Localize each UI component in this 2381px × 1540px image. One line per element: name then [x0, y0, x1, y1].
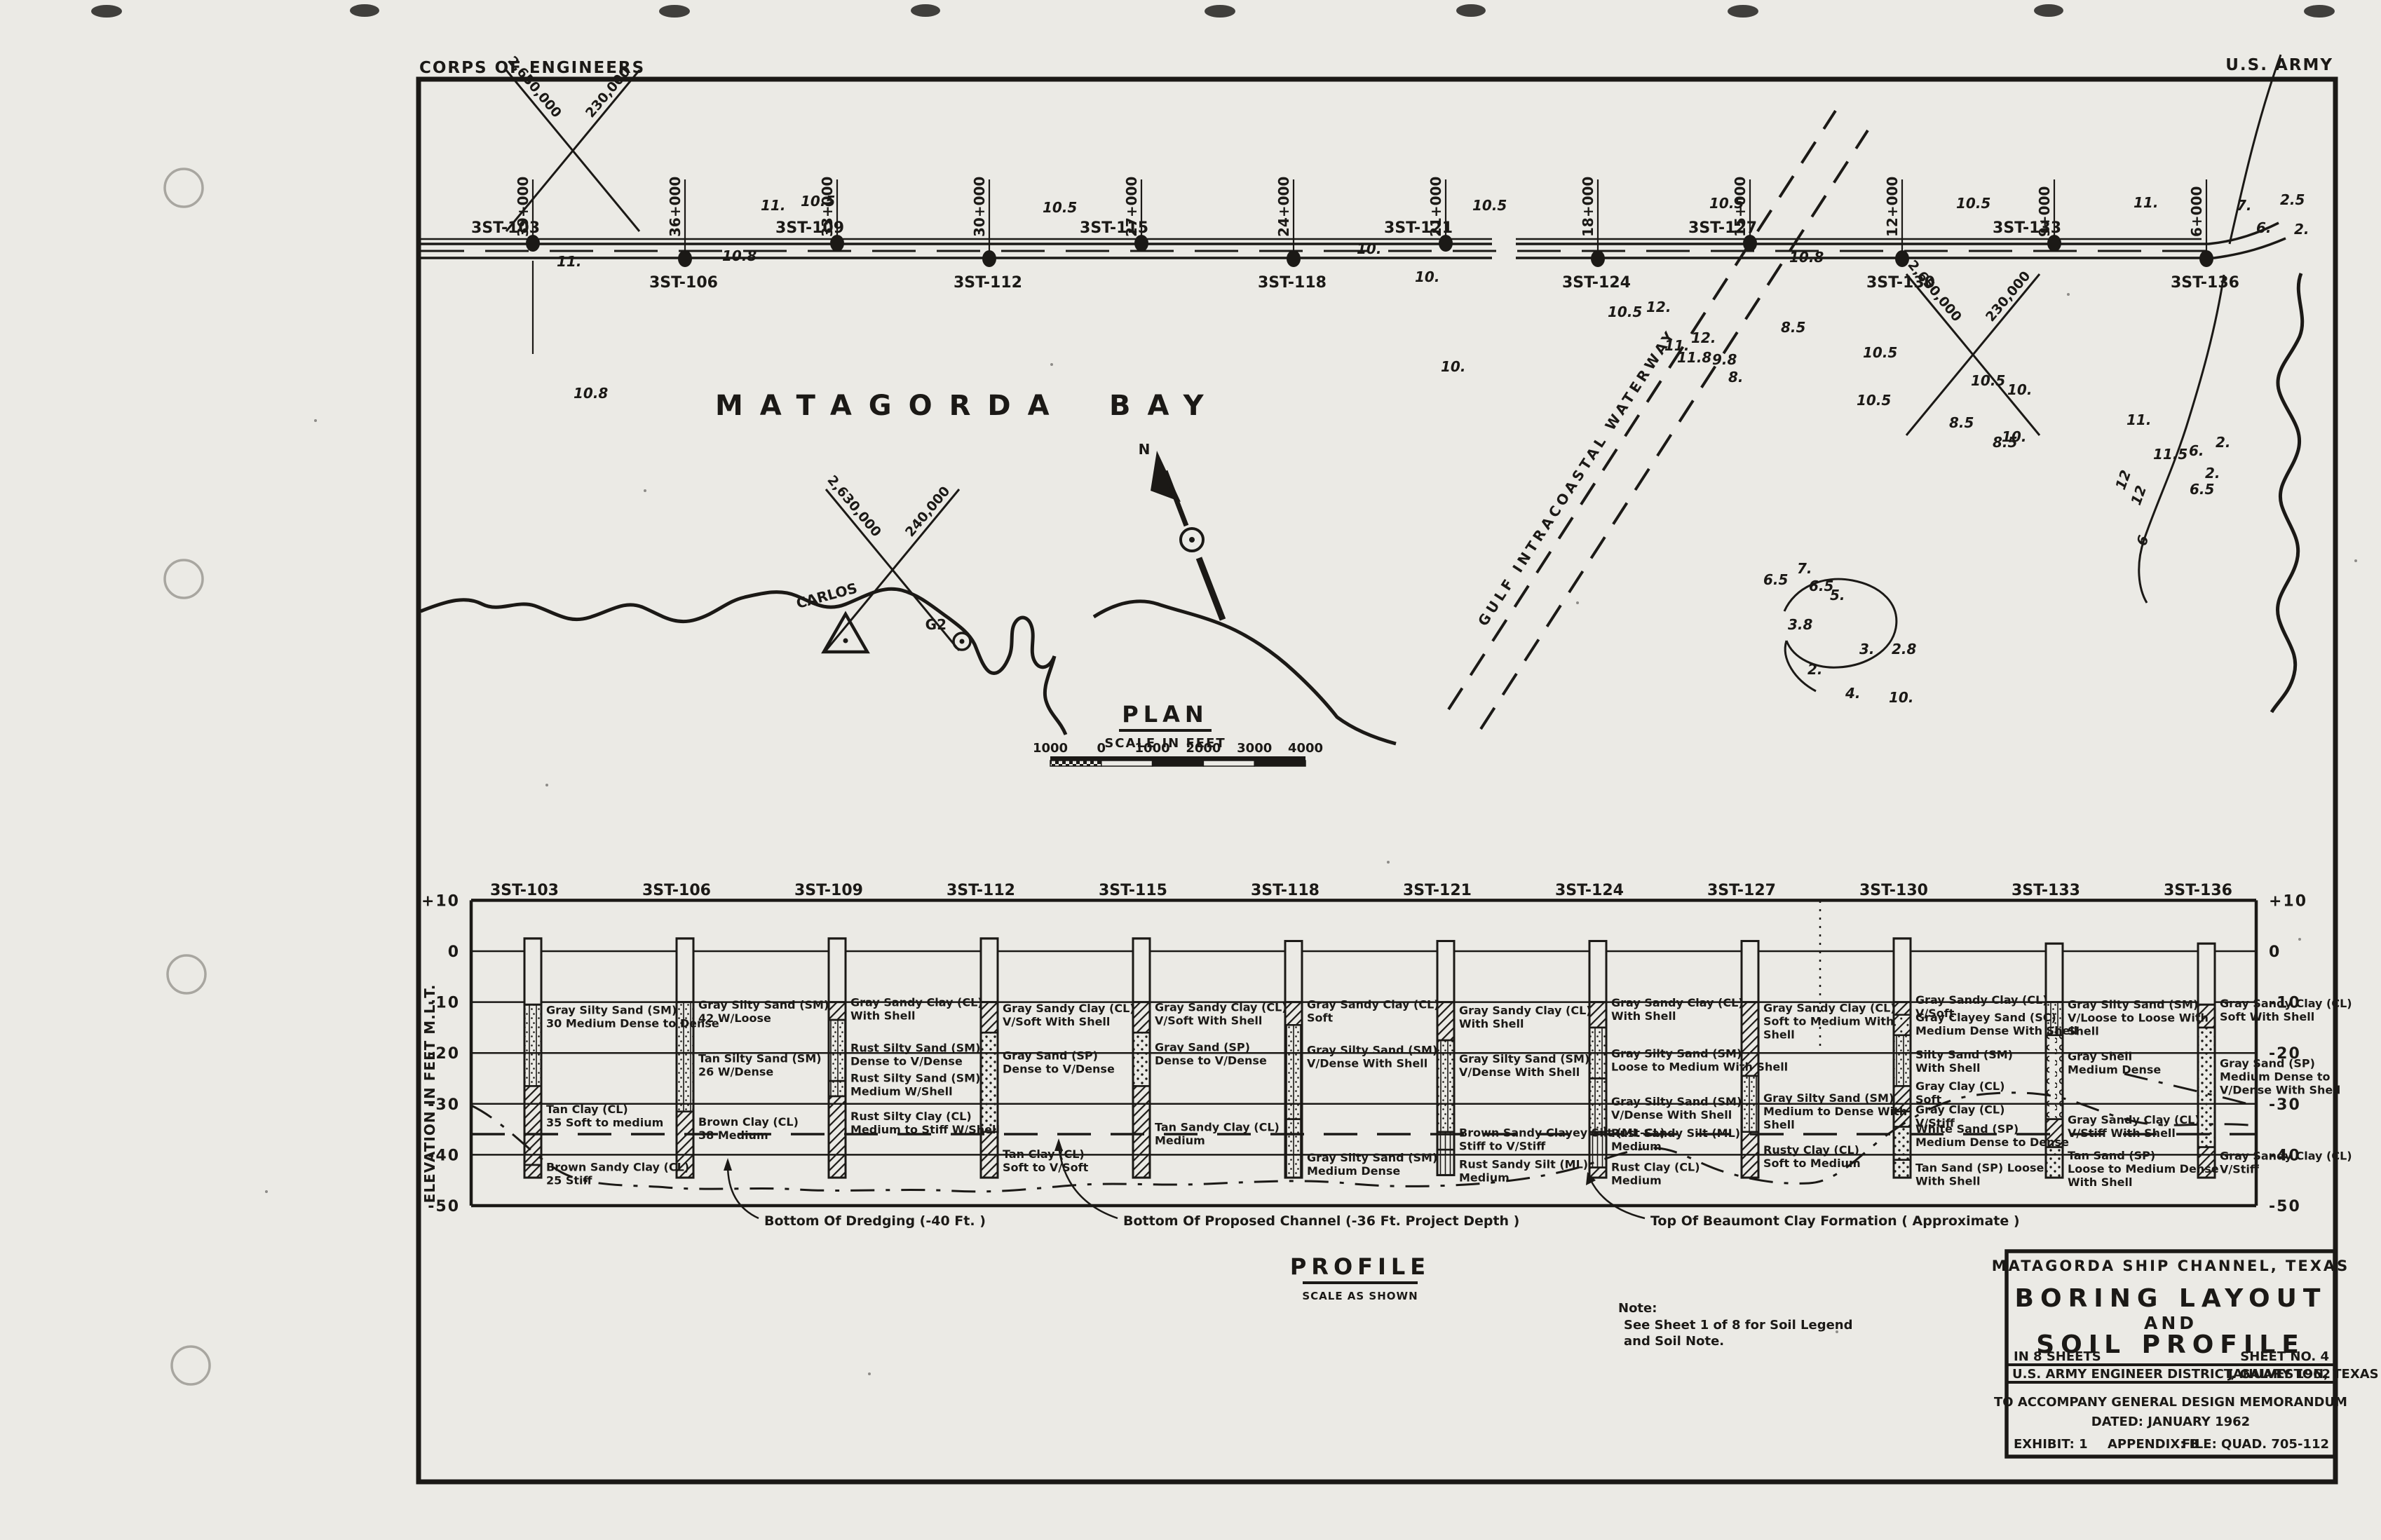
soil-layer-label: V/Dense With Shell [2220, 1084, 2340, 1097]
soil-layer [1894, 1126, 1911, 1159]
profile-boring-label: 3ST-103 [490, 882, 559, 899]
elevation-tick-right: 0 [2269, 943, 2281, 961]
soil-layer-label: Medium Dense [2068, 1063, 2161, 1076]
soil-layer-label: Tan Sandy Clay (CL) [1155, 1120, 1280, 1133]
annotation-bottom-of-dredging: Bottom Of Dredging (-40 Ft. ) [764, 1213, 986, 1229]
soil-layer-label: Gray Silty Sand (SM) [2068, 997, 2198, 1011]
scale-tick-label: 0 [1097, 741, 1106, 756]
soil-layer [1133, 1086, 1150, 1178]
soil-layer-label: With Shell [1915, 1061, 1980, 1075]
scale-tick-label: 1000 [1033, 741, 1068, 756]
soil-layer [2046, 1119, 2063, 1147]
annotation-beaumont-clay: Top Of Beaumont Clay Formation ( Approxi… [1650, 1213, 2020, 1229]
soil-layer [829, 1020, 846, 1081]
boring-casing [1742, 941, 1758, 1002]
sounding-value: 8.5 [1993, 434, 2017, 451]
soil-layer [1589, 1079, 1606, 1132]
sounding-value: 10.5 [1043, 199, 1077, 216]
soil-layer-label: With Shell [850, 1009, 915, 1022]
note-heading: Note: [1618, 1301, 1657, 1316]
soil-layer-label: Medium to Stiff W/Shell [850, 1123, 1000, 1136]
soil-layer-label: Gray Sandy Clay (CL) [1611, 996, 1744, 1009]
soil-layer [1742, 1002, 1758, 1076]
soil-layer-label: Shell [1763, 1028, 1795, 1041]
soil-layer-label: Gray Clay (CL) [1915, 1079, 2004, 1093]
soil-layer [1285, 1025, 1302, 1119]
sounding-value: 3. [1859, 641, 1875, 657]
soil-layer-label: Soft [1307, 1011, 1333, 1024]
soil-layer-label: Gray Silty Sand (SM) [1307, 1151, 1437, 1164]
bay-name-word2: BAY [1109, 390, 1221, 422]
plan-boring-label: 3ST-106 [649, 274, 718, 292]
soil-layer-label: Gray Sandy Clay (CL) [1003, 1002, 1135, 1015]
scale-tick-label: 2000 [1186, 741, 1221, 756]
soil-layer-label: Gray Sandy Clay (CL) [2068, 1113, 2200, 1126]
soil-layer [524, 1004, 541, 1086]
annotation-proposed-channel: Bottom Of Proposed Channel (-36 Ft. Proj… [1123, 1213, 1519, 1229]
soil-layer-label: V/Dense With Shell [1611, 1108, 1732, 1122]
soil-layer [677, 1053, 693, 1111]
soil-layer [1894, 1086, 1911, 1111]
north-label: N [1139, 441, 1151, 458]
boring-location-dot [1591, 250, 1605, 267]
profile-boring-label: 3ST-124 [1555, 882, 1624, 899]
boring-location-dot [1134, 235, 1148, 252]
soil-layer-label: Gray Clayey Sand (SC) [1915, 1011, 2056, 1024]
sounding-value: 11.5 [2153, 446, 2187, 463]
soil-layer-label: Gray Sandy Clay (CL) [1307, 997, 1439, 1011]
sounding-value: 10. [1357, 240, 1381, 257]
boring-location-dot [982, 250, 996, 267]
soil-layer-label: V/Dense With Shell [1307, 1057, 1427, 1070]
profile-title: PROFILE [1290, 1253, 1430, 1280]
sounding-value: 10.5 [1472, 197, 1507, 214]
soil-layer-label: Gray Sandy Clay (CL) [2220, 1150, 2352, 1163]
sounding-value: 12. [1691, 329, 1716, 346]
soil-layer-label: Gray Clay (CL) [1915, 1103, 2004, 1117]
sounding-value: 11. [761, 197, 785, 214]
soil-layer [1589, 1168, 1606, 1178]
station-number-label: 24+000 [1275, 177, 1292, 237]
soil-layer [677, 1002, 693, 1054]
soil-layer-label: Rust Clay (CL) [1611, 1161, 1700, 1174]
profile-scale-note: SCALE AS SHOWN [1302, 1290, 1418, 1302]
sounding-value: 4. [1845, 685, 1861, 702]
sounding-value: 11. [2134, 194, 2158, 211]
soil-layer-label: Gray Sand (SP) [1003, 1049, 1098, 1063]
boring-location-dot [2199, 250, 2213, 267]
station-number-label: 6+000 [2188, 186, 2205, 237]
soil-layer-label: Medium Dense [1307, 1164, 1400, 1178]
sounding-value: 11.8 [1677, 349, 1711, 366]
soil-layer-label: 42 W/Loose [698, 1011, 771, 1025]
soil-layer [1894, 1112, 1911, 1127]
plan-boring-label: 3ST-109 [775, 219, 844, 237]
note-line-1: See Sheet 1 of 8 for Soil Legend [1624, 1318, 1853, 1333]
soil-layer-label: Gray Sandy Clay (CL) [2220, 997, 2352, 1010]
sounding-value: 10.5 [1971, 372, 2005, 389]
boring-location-dot [1439, 235, 1453, 252]
sounding-value: 6.5 [2190, 481, 2214, 498]
boring-location-dot [1895, 250, 1909, 267]
soil-layer-label: With Shell [1611, 1009, 1676, 1023]
sounding-value: 6. [2256, 219, 2272, 236]
soil-layer-label: Gray Silty Sand (SM) [698, 998, 829, 1011]
soil-layer [1133, 1033, 1150, 1086]
boring-casing [2046, 943, 2063, 1002]
scale-tick-label: 1000 [1135, 741, 1170, 756]
sounding-value: 10. [1441, 358, 1465, 375]
sounding-value: 10.5 [801, 193, 835, 210]
profile-boring-label: 3ST-106 [642, 882, 711, 899]
sounding-value: 2. [2294, 221, 2309, 238]
title-block-sheets: IN 8 SHEETS [2014, 1349, 2101, 1364]
soil-layer [829, 1002, 846, 1020]
plan-title: PLAN [1122, 701, 1208, 728]
soil-layer-label: V/Dense With Shell [1459, 1065, 1580, 1079]
scale-tick-label: 3000 [1237, 741, 1272, 756]
boring-casing [1437, 941, 1454, 1002]
soil-layer-label: Brown Clay (CL) [698, 1115, 799, 1129]
soil-layer [1894, 1160, 1911, 1178]
soil-layer [2198, 1147, 2215, 1178]
boring-location-dot [1287, 250, 1301, 267]
soil-layer-label: Gray Sandy Clay (CL) [1459, 1004, 1592, 1017]
soil-layer [2046, 1035, 2063, 1119]
soil-layer-label: Gray Silty Sand (SM) [1763, 1091, 1894, 1105]
title-block-title-1: BORING LAYOUT [2015, 1284, 2327, 1313]
boring-location-dot [1743, 235, 1757, 252]
soil-layer-label: Soft With Shell [2220, 1010, 2314, 1023]
plan-boring-label: 3ST-118 [1258, 274, 1327, 292]
soil-layer-label: Gray Sandy Clay (CL) [850, 995, 983, 1009]
soil-layer-label: 35 Soft to medium [546, 1116, 663, 1129]
station-number-label: 12+000 [1884, 177, 1901, 237]
soil-layer-label: Gray Sandy Clay (CL) [1763, 1001, 1896, 1014]
boring-casing [2198, 943, 2215, 1004]
sounding-value: 10.8 [722, 247, 757, 264]
title-block-exhibit: EXHIBIT: 1 [2014, 1437, 2088, 1452]
boring-location-dot [830, 235, 844, 252]
sounding-value: 10.8 [574, 385, 608, 402]
soil-layer-label: Medium to Dense With [1763, 1105, 1907, 1118]
soil-layer-label: Tan Clay (CL) [546, 1103, 628, 1116]
soil-layer-label: Medium W/Shell [850, 1085, 953, 1098]
note-line-2: and Soil Note. [1624, 1334, 1724, 1349]
boring-casing [677, 939, 693, 1002]
soil-layer-label: Rust Sandy Silt (ML) [1459, 1157, 1588, 1171]
profile-boring-label: 3ST-118 [1251, 882, 1320, 899]
sounding-value: 9.8 [1712, 351, 1737, 368]
profile-boring-label: 3ST-130 [1859, 882, 1928, 899]
soil-layer-label: With Shell [2068, 1176, 2132, 1189]
elevation-axis-label: ELEVATION IN FEET M.L.T. [421, 984, 438, 1204]
sounding-value: 10. [1415, 268, 1439, 285]
soil-layer [1437, 1002, 1454, 1040]
sounding-value: 8. [1728, 369, 1744, 386]
plan-boring-label: 3ST-124 [1562, 274, 1631, 292]
soil-layer [2046, 1147, 2063, 1178]
title-block-file: FILE: QUAD. 705-112 [2182, 1437, 2329, 1452]
soil-layer [1437, 1040, 1454, 1132]
boring-casing [1894, 939, 1911, 1002]
boring-casing [1285, 941, 1302, 1002]
sounding-value: 11. [2126, 411, 2151, 428]
soil-layer-label: Tan Silty Sand (SM) [698, 1051, 822, 1065]
profile-boring-label: 3ST-127 [1707, 882, 1776, 899]
sounding-value: 10.5 [1857, 392, 1891, 409]
plan-scale-bar [1050, 756, 1305, 766]
plan-boring-label: 3ST-103 [471, 219, 540, 237]
title-block-sheet-no: SHEET NO. 4 [2240, 1349, 2329, 1364]
soil-layer-label: Rust Sandy Silt (ML) [1611, 1126, 1740, 1140]
scale-tick-label: 4000 [1288, 741, 1323, 756]
title-block-memo-1: TO ACCOMPANY GENERAL DESIGN MEMORANDUM [1994, 1395, 2347, 1410]
sounding-value: 3.8 [1788, 616, 1813, 633]
soil-layer-label: V/Soft With Shell [1155, 1014, 1262, 1028]
plan-boring-label: 3ST-115 [1080, 219, 1148, 237]
sounding-value: 2. [2216, 434, 2231, 451]
boring-casing [981, 939, 998, 1002]
scanned-drawing-sheet: CORPS OF ENGINEERS U.S. ARMY GULF INTRAC… [0, 0, 2381, 1540]
title-block-project: MATAGORDA SHIP CHANNEL, TEXAS [1992, 1258, 2350, 1274]
drawing-svg: CORPS OF ENGINEERS U.S. ARMY GULF INTRAC… [0, 0, 2381, 1540]
soil-layer [829, 1081, 846, 1096]
soil-layer-label: Dense to V/Dense [1155, 1054, 1267, 1067]
title-block-memo-2: DATED: JANUARY 1962 [2091, 1415, 2250, 1429]
elevation-tick-right: -50 [2269, 1198, 2301, 1215]
plan-boring-label: 3ST-133 [1993, 219, 2061, 237]
soil-layer-label: Medium Dense to [2220, 1070, 2330, 1084]
soil-layer-label: Gray Silty Sand (SM) [1611, 1047, 1742, 1061]
profile-boring-label: 3ST-136 [2164, 882, 2232, 899]
sounding-value: 11. [557, 253, 581, 270]
soil-layer-label: Stiff to V/Stiff [1459, 1139, 1546, 1152]
elevation-tick-left: 0 [448, 943, 460, 961]
soil-layer [981, 1033, 998, 1132]
soil-layer-label: 25 Stiff [546, 1174, 592, 1187]
profile-boring-label: 3ST-121 [1403, 882, 1472, 899]
soil-layer [524, 1086, 541, 1165]
sounding-value: 10.8 [1789, 249, 1824, 266]
sounding-value: 8.5 [1781, 319, 1805, 336]
boring-location-dot [526, 235, 540, 252]
soil-layer [981, 1132, 998, 1178]
sounding-value: 12. [1646, 299, 1671, 315]
sounding-value: 2. [1807, 661, 1823, 678]
profile-boring-label: 3ST-133 [2012, 882, 2080, 899]
sounding-value: 10.5 [1709, 195, 1744, 212]
soil-layer-label: Rust Silty Clay (CL) [850, 1110, 972, 1123]
station-number-label: 18+000 [1580, 177, 1596, 237]
soil-layer-label: Gray Shell [2068, 1049, 2132, 1063]
sounding-value: 8.5 [1949, 414, 1974, 431]
soil-layer [2198, 1004, 2215, 1028]
plan-boring-label: 3ST-127 [1688, 219, 1757, 237]
soil-layer-label: Dense to V/Dense [850, 1055, 963, 1068]
soil-layer-label: Soft to Medium [1763, 1157, 1861, 1170]
profile-boring-label: 3ST-115 [1099, 882, 1167, 899]
soil-layer-label: Tan Sand (SP) [2068, 1149, 2155, 1162]
sounding-value: 10.5 [1863, 344, 1897, 361]
plan-boring-label: 3ST-121 [1384, 219, 1453, 237]
soil-layer-label: Gray Sandy Clay (CL) [1155, 1001, 1287, 1014]
soil-layer-label: Gray Sand (SP) [2220, 1057, 2315, 1070]
soil-layer-label: 38 Medium [698, 1129, 768, 1142]
soil-layer-label: Tan Sand (SP) Loose [1915, 1161, 2044, 1174]
soil-layer [829, 1096, 846, 1178]
station-number-label: 30+000 [971, 177, 988, 237]
sounding-value: 2.5 [2280, 191, 2305, 208]
soil-layer-label: Shell [1763, 1118, 1795, 1131]
soil-layer-label: Tan Clay (CL) [1003, 1147, 1085, 1161]
title-block-date: JANUARY 1962 [2227, 1367, 2331, 1382]
soil-layer-label: Medium [1611, 1174, 1662, 1187]
soil-layer [1437, 1150, 1454, 1175]
soil-layer [1742, 1076, 1758, 1132]
soil-layer-label: Soft to V/Soft [1003, 1161, 1089, 1174]
soil-layer-label: White Sand (SP) [1915, 1122, 2019, 1136]
boring-casing [829, 939, 846, 1002]
sounding-value: 10. [2007, 381, 2032, 398]
soil-layer-label: Medium [1611, 1140, 1662, 1153]
boring-location-dot [678, 250, 692, 267]
soil-layer [2198, 1028, 2215, 1147]
soil-layer-label: Gray Silty Sand (SM) [1611, 1095, 1742, 1108]
sounding-value: 6.5 [1763, 571, 1788, 588]
plan-boring-label: 3ST-112 [954, 274, 1022, 292]
soil-layer-label: Brown Sandy Clay (CL) [546, 1161, 689, 1174]
soil-layer [1285, 1119, 1302, 1178]
soil-layer-label: V/Soft With Shell [1003, 1015, 1110, 1028]
soil-layer-label: V/Stiff [2220, 1163, 2260, 1176]
soil-layer-label: Loose to Medium With Shell [1611, 1061, 1788, 1074]
soil-layer [1894, 1015, 1911, 1035]
soil-layer-label: Rust Silty Sand (SM) [850, 1072, 980, 1085]
soil-layer-label: Medium [1459, 1171, 1510, 1184]
soil-layer-label: Dense to V/Dense [1003, 1063, 1115, 1076]
elevation-tick-right: +10 [2269, 892, 2307, 910]
station-number-label: 36+000 [667, 177, 684, 237]
soil-layer-label: Gray Silty Sand (SM) [1307, 1044, 1437, 1057]
boring-casing [1133, 939, 1150, 1002]
sounding-value: 10.5 [1608, 304, 1642, 320]
boring-location-dot [2047, 235, 2061, 252]
soil-layer [1589, 1132, 1606, 1168]
soil-layer [1133, 1002, 1150, 1033]
sounding-value: 10.5 [1956, 195, 1990, 212]
soil-layer-label: Gray Sand (SP) [1155, 1040, 1250, 1054]
soil-layer-label: Gray Silty Sand (SM) [1459, 1052, 1589, 1065]
soil-layer [1285, 1002, 1302, 1025]
boring-casing [524, 939, 541, 1004]
sounding-value: 10. [1889, 689, 1913, 706]
elevation-tick-left: +10 [421, 892, 460, 910]
boring-casing [1589, 941, 1606, 1002]
soil-layer-label: V/Stiff With Shell [2068, 1126, 2176, 1140]
plan-boring-label: 3ST-130 [1866, 274, 1935, 292]
soil-layer-label: Soft to Medium With [1763, 1014, 1894, 1028]
soil-layer-label: Rust Silty Sand (SM) [850, 1042, 980, 1055]
sounding-value: 6. [2189, 442, 2204, 459]
soil-layer-label: Gray Silty Sand (SM) [546, 1003, 677, 1016]
soil-layer-label: Gray Sandy Clay (CL) [1915, 993, 2048, 1007]
profile-boring-label: 3ST-112 [947, 882, 1015, 899]
sounding-value: 2.8 [1892, 641, 1917, 657]
soil-layer [524, 1165, 541, 1178]
bay-name-word1: MATAGORDA [715, 390, 1066, 422]
soil-layer [981, 1002, 998, 1033]
soil-layer-label: Rusty Clay (CL) [1763, 1143, 1859, 1157]
soil-layer [2046, 1002, 2063, 1035]
soil-layer-label: V/Loose to Loose With [2068, 1011, 2209, 1024]
soil-layer [1894, 1002, 1911, 1015]
soil-layer-label: Silty Sand (SM) [1915, 1048, 2013, 1061]
soil-layer [1589, 1028, 1606, 1079]
sounding-value: 2. [2205, 465, 2220, 482]
soil-layer [677, 1112, 693, 1178]
soil-layer-label: Medium [1155, 1133, 1205, 1147]
plan-boring-label: 3ST-136 [2171, 274, 2239, 292]
soil-layer [1742, 1132, 1758, 1178]
elevation-tick-right: -30 [2269, 1096, 2301, 1114]
soil-layer-label: With Shell [1915, 1174, 1980, 1187]
soil-layer [1589, 1002, 1606, 1028]
profile-boring-label: 3ST-109 [794, 882, 863, 899]
soil-layer [1894, 1035, 1911, 1086]
sounding-value: 7. [1797, 560, 1812, 577]
soil-layer-label: With Shell [1459, 1017, 1524, 1030]
sounding-value: 5. [1830, 587, 1845, 604]
soil-layer-label: Shell [2068, 1024, 2099, 1037]
sounding-value: 7. [2237, 197, 2252, 214]
soil-layer-label: 26 W/Dense [698, 1065, 773, 1078]
soil-layer-label: Loose to Medium Dense [2068, 1162, 2219, 1176]
soil-layer [1437, 1132, 1454, 1150]
